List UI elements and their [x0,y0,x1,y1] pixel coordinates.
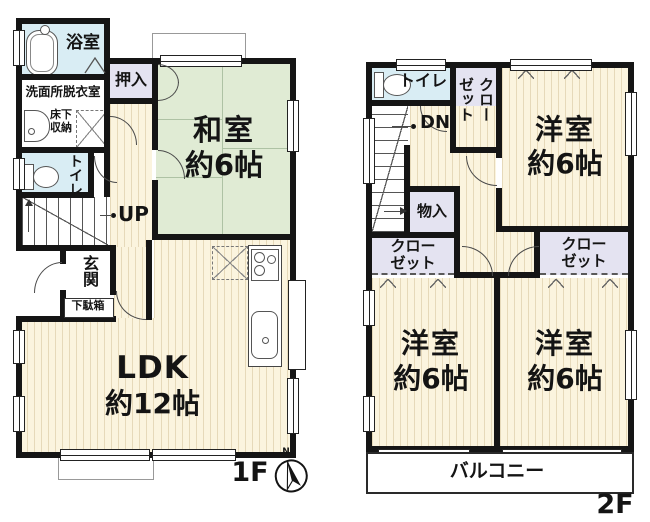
floor-2-plan: トイレ クローゼット DN 物入 クローゼット クローゼット 洋室 約6帖 洋室… [0,0,650,522]
bedroom-sw-size-label: 約6帖 [370,363,492,395]
hanger-mark [430,279,446,288]
bedroom-se-size-label: 約6帖 [502,363,628,395]
bedroom-ne-label: 洋室 [502,114,628,146]
bedroom-ne-size-label: 約6帖 [502,148,628,180]
stairs-arrow [400,207,407,215]
bedroom-se-label: 洋室 [502,328,628,360]
bedroom-sw-label: 洋室 [370,328,492,360]
floor-2-label: 2F [592,490,638,521]
wall [404,186,460,192]
hanger-mark [548,279,564,288]
closet-right-label: クローゼット [559,236,609,270]
window [396,59,446,71]
toilet-label-2f: トイレ [396,72,450,90]
wall [494,272,500,452]
hanger-mark [564,70,580,79]
window [510,59,592,71]
closet-left-label: クローゼット [388,238,438,272]
dn-label: DN [420,113,458,134]
wall [496,226,634,232]
dn-leader-line [392,126,412,127]
window [363,118,375,184]
balcony-label: バルコニー [407,461,587,483]
closet-upper-label: クローゼット [458,74,496,124]
closet-front-dashed [540,273,628,277]
hanger-mark [380,279,396,288]
storage-label: 物入 [412,203,452,220]
window [363,396,375,432]
hanger-mark [602,279,618,288]
hanger-mark [518,70,534,79]
wall [450,147,502,153]
window [363,290,375,326]
floor-plan-canvas: 浴室 洗面所脱衣室 床下収納 トイレ 押入 和室 約6帖 UP 玄関 下駄箱 L… [0,0,650,522]
closet-front-dashed [372,273,454,277]
